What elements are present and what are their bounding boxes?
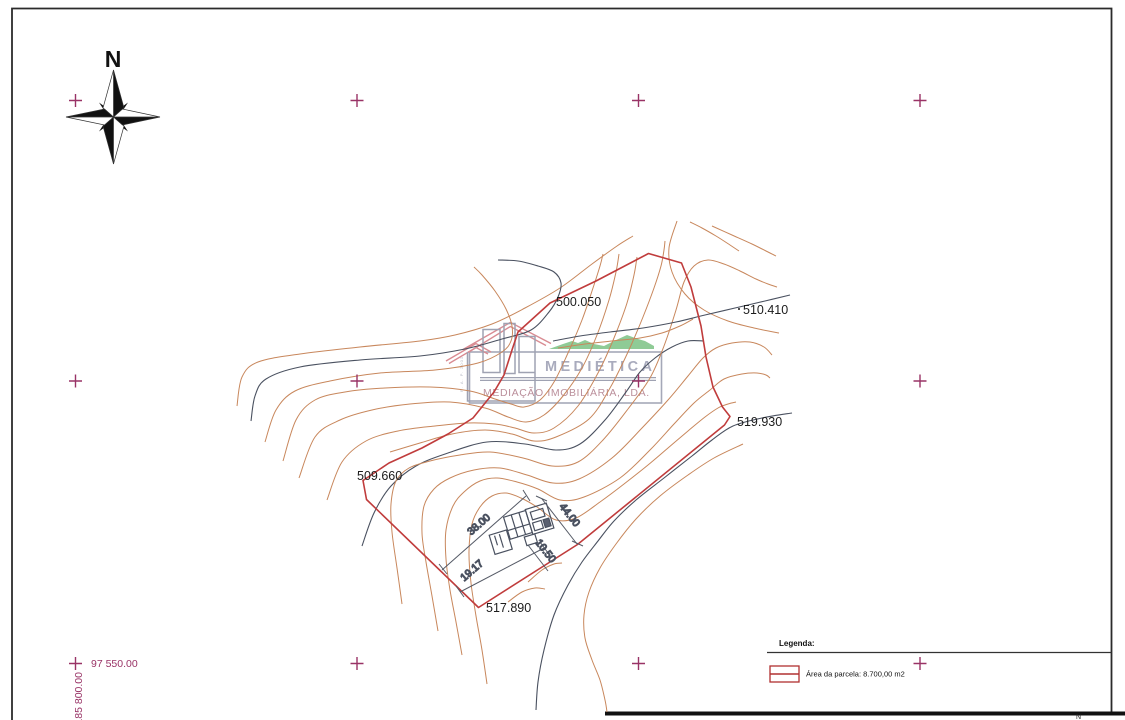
svg-text:500.050: 500.050 xyxy=(556,295,601,309)
svg-text:Legenda:: Legenda: xyxy=(779,639,815,648)
svg-text:Área da parcela: 8.700,00 m2: Área da parcela: 8.700,00 m2 xyxy=(806,670,905,679)
svg-text:97 550.00: 97 550.00 xyxy=(91,658,138,670)
svg-text:N: N xyxy=(1076,714,1081,720)
svg-text:519.930: 519.930 xyxy=(737,415,782,429)
svg-text:N: N xyxy=(105,46,122,72)
svg-text:R. A. P. 2001: R. A. P. 2001 xyxy=(459,356,464,392)
svg-text:185 800.00: 185 800.00 xyxy=(73,672,85,720)
svg-text:510.410: 510.410 xyxy=(743,303,788,317)
svg-text:509.660: 509.660 xyxy=(357,469,402,483)
svg-text:517.890: 517.890 xyxy=(486,601,531,615)
